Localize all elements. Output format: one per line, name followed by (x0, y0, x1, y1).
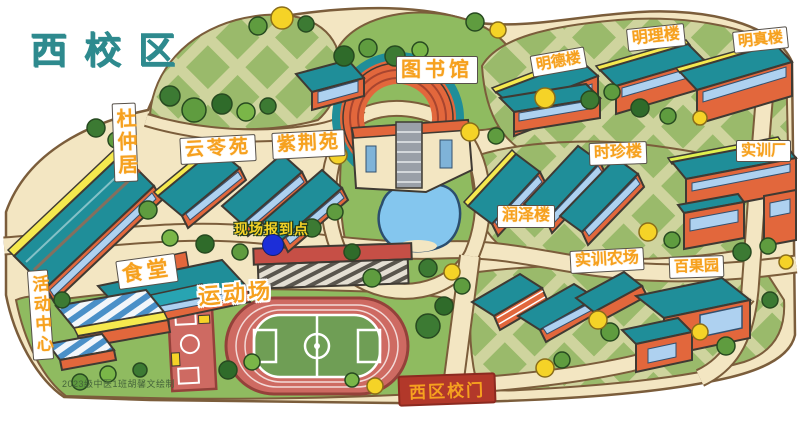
checkin-dot-marker (262, 234, 284, 256)
label-yunlingyuan: 云苓苑 (179, 134, 256, 165)
label-baiguoyuan: 百果园 (669, 255, 725, 278)
label-shixun-farm: 实训农场 (569, 247, 644, 274)
label-sports-field: 运动场 (197, 273, 275, 311)
map-title: 西校区 (30, 20, 192, 74)
label-duzhongju: 杜仲居 (112, 103, 139, 183)
label-west-gate: 西区校门 (397, 372, 496, 406)
label-zijingyuan: 紫荆苑 (271, 129, 345, 159)
campus-map: 西校区 杜仲居 云苓苑 紫荆苑 图书馆 明德楼 明理楼 明真楼 时珍楼 实训厂 … (0, 0, 800, 424)
label-shizhen: 时珍楼 (589, 141, 648, 166)
label-runze: 润泽楼 (497, 205, 555, 228)
label-library: 图书馆 (396, 56, 478, 84)
label-shixun-factory: 实训厂 (736, 140, 791, 162)
pond (379, 185, 460, 252)
credit-text: 2023级中医1班胡馨文绘制 (62, 377, 175, 390)
